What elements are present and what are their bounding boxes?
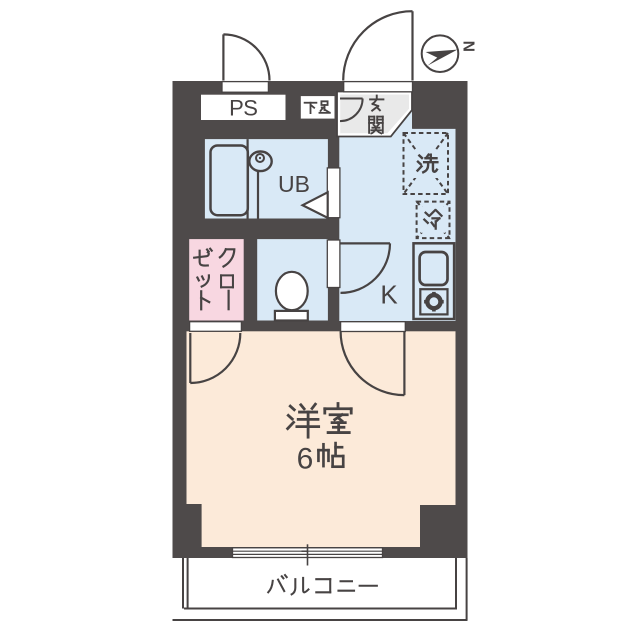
svg-text:6: 6 <box>297 443 314 476</box>
svg-text:K: K <box>380 280 398 310</box>
svg-text:N: N <box>460 41 477 52</box>
svg-text:UB: UB <box>278 171 310 197</box>
svg-text:PS: PS <box>229 96 257 121</box>
